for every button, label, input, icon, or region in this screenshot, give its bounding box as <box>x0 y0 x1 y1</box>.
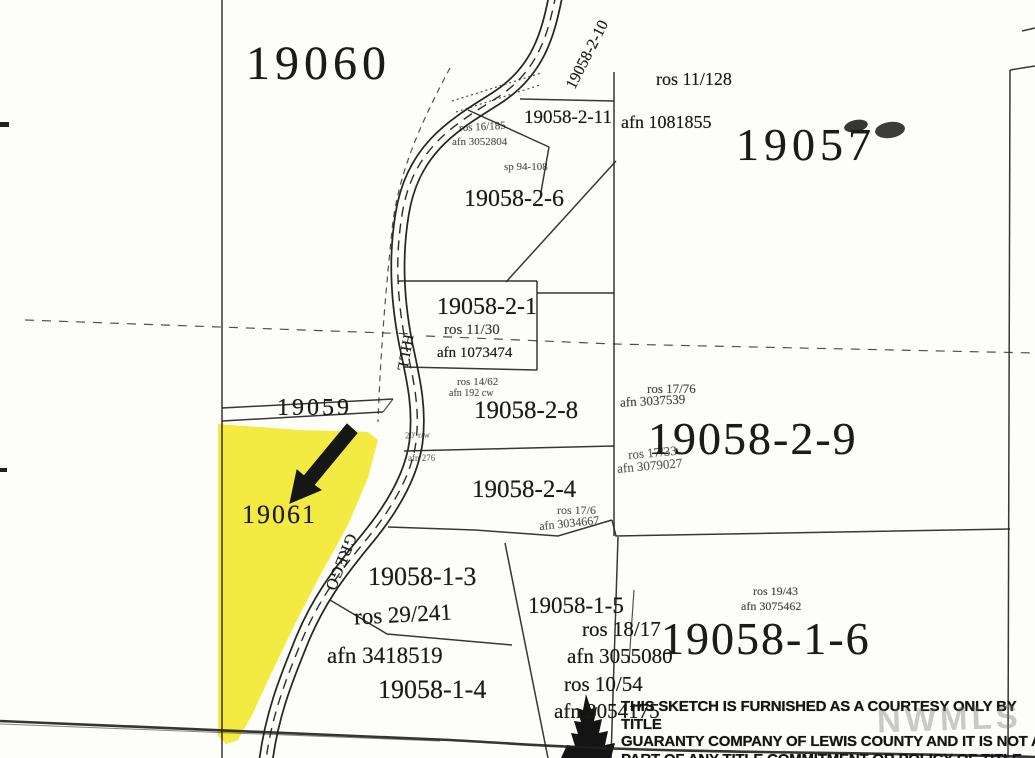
parcel-label-19061: 19061 <box>242 502 317 528</box>
map-linework <box>0 0 1035 758</box>
parcel-label-19060: 19060 <box>246 40 391 88</box>
ref-afn-1081855: afn 1081855 <box>621 113 711 131</box>
ref-afn-3052804: afn 3052804 <box>452 137 507 148</box>
ref-sp-94-108: sp 94-108 <box>504 162 548 173</box>
plat-map-sketch: 19060 19057 19058-2-9 19058-1-6 19058-2-… <box>0 0 1035 758</box>
ref-afn-3418519: afn 3418519 <box>327 644 443 667</box>
parcel-label-19058-2-1: 19058-2-1 <box>437 295 537 319</box>
ref-ros-19-43: ros 19/43 <box>753 585 798 597</box>
ref-ros-11-128: ros 11/128 <box>656 70 732 88</box>
ref-afn-3055080: afn 3055080 <box>567 646 673 667</box>
parcel-label-19057: 19057 <box>736 122 876 168</box>
parcel-label-19058-1-3: 19058-1-3 <box>368 564 476 590</box>
ref-ros-11-30: ros 11/30 <box>444 323 500 338</box>
dashed-section-line <box>25 320 1035 353</box>
parcel-label-19058-1-4: 19058-1-4 <box>378 677 486 703</box>
parcel-label-19058-1-6: 19058-1-6 <box>661 616 871 662</box>
parcel-label-19058-2-11: 19058-2-11 <box>524 108 612 127</box>
disclaimer-line-3: PART OF ANY TITLE COMMITMENT OR POLICY O… <box>621 751 1035 758</box>
ref-afn-3037539: afn 3037539 <box>620 392 686 408</box>
parcel-label-19058-1-5: 19058-1-5 <box>528 594 624 617</box>
ref-ros-18-17: ros 18/17 <box>582 619 661 640</box>
ref-afn-1073474: afn 1073474 <box>437 346 512 361</box>
east-corner-tick <box>1010 66 1035 70</box>
ref-afn-3075462: afn 3075462 <box>741 600 801 612</box>
ref-ros-10-54: ros 10/54 <box>564 674 643 695</box>
east-section-line <box>1008 70 1010 758</box>
ref-rw-note: 20' r/w <box>405 431 430 441</box>
ref-ros-14-62: ros 14/62 <box>457 377 498 388</box>
watermark: NWMLS <box>876 697 1022 740</box>
ref-ros-29-241: ros 29/241 <box>353 600 452 628</box>
parcel-label-19059: 19059 <box>277 396 352 420</box>
scan-artifact <box>1022 28 1035 31</box>
ref-afn-276: afn 276 <box>408 454 435 463</box>
ref-afn-192: afn 192 cw <box>449 389 493 399</box>
parcel-label-19058-2-6: 19058-2-6 <box>464 187 564 211</box>
parcel-label-19058-2-8: 19058-2-8 <box>474 398 578 423</box>
parcel-label-19058-2-4: 19058-2-4 <box>472 477 576 502</box>
